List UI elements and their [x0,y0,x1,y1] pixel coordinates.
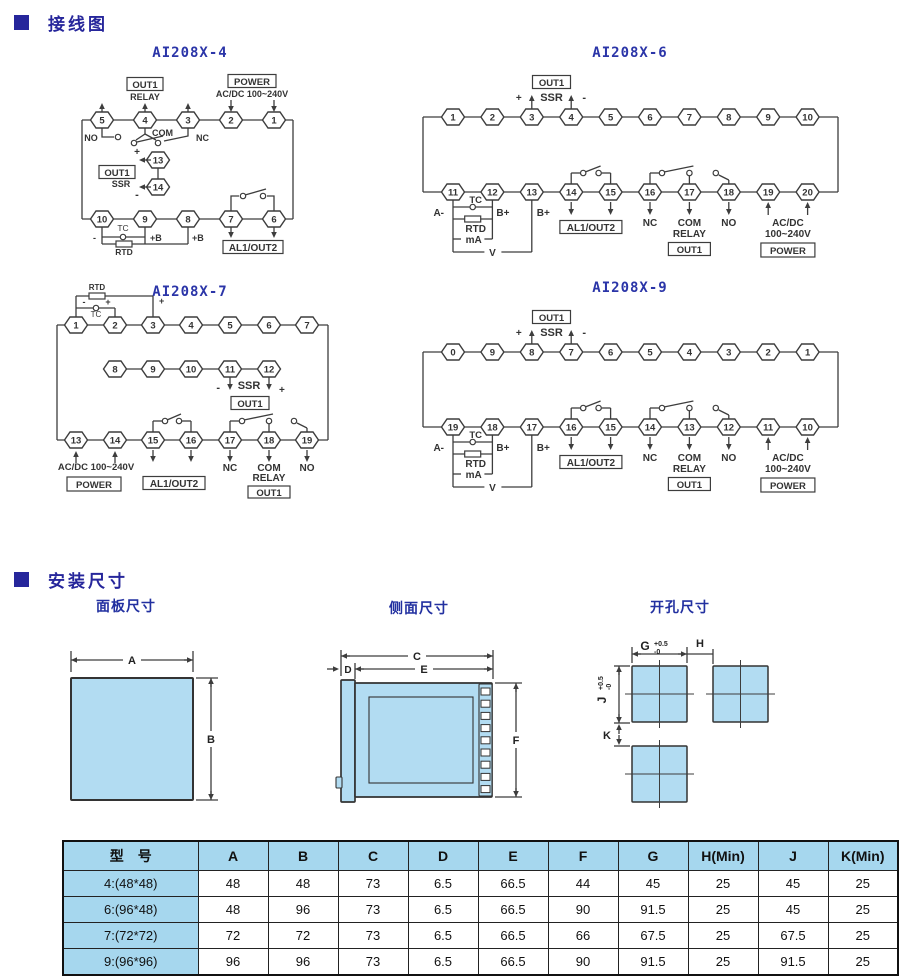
col-header: A [198,841,268,871]
arrowhead [142,103,148,109]
terminal-number: 6 [266,320,271,331]
terminal-number: 1 [450,112,456,123]
arrowhead [227,384,233,390]
terminal-number: 2 [490,112,495,123]
dimension-label: G [640,639,649,653]
terminal-number: 7 [228,214,233,225]
dimension-label: D [344,665,351,676]
arrowhead [266,456,272,462]
terminal-number: 19 [763,187,774,198]
terminal-number: 1 [73,320,79,331]
contact-dot [162,418,167,423]
row-label: 7:(72*72) [63,923,198,949]
diagram-label: B+ [496,443,509,454]
diagram-label: POWER [76,480,112,491]
cell: 66.5 [478,949,548,976]
diagram-label: 100~240V [765,464,811,475]
contact-dot [131,140,136,145]
diagram-label: TC [469,195,482,206]
arrowhead [765,437,771,443]
cell: 66.5 [478,897,548,923]
table-header-row: 型 号ABCDEFGH(Min)JK(Min) [63,841,898,871]
diagram-label: NC [643,218,657,229]
diagram-label: OUT1 [677,245,703,256]
arrowhead [805,202,811,208]
terminal-number: 5 [608,112,614,123]
cell: 44 [548,871,618,897]
col-header: B [268,841,338,871]
terminal-number: 3 [726,347,731,358]
terminal-number: 4 [569,112,575,123]
side-bezel [341,680,355,802]
terminal-number: 11 [448,187,459,198]
diagram-label: - [582,92,586,104]
terminal-number: 17 [527,422,538,433]
cell: 48 [268,871,338,897]
diagram-label: AC/DC 100~240V [216,89,288,99]
side-knob [336,777,342,788]
diagram-label: B+ [496,208,509,219]
contact-dot [239,418,244,423]
diagram-label: A- [433,208,444,219]
terminal-number: 19 [302,435,313,446]
diagram-label: + [159,296,164,306]
diagram-label: POWER [234,77,270,88]
cell: 25 [688,923,758,949]
diagram-label: + [134,147,140,158]
diagram-label: OUT1 [256,488,282,499]
terminal-number: 3 [150,320,155,331]
col-header: D [408,841,478,871]
cell: 72 [198,923,268,949]
terminal-number: 13 [684,422,695,433]
cell: 91.5 [618,897,688,923]
terminal-number: 3 [529,112,534,123]
dimension-label: F [513,735,520,747]
terminal-number: 17 [684,187,695,198]
terminal-number: 14 [153,182,164,193]
arrowhead [647,209,653,215]
diagram-label: -0 [606,684,613,690]
contact-dot [713,170,718,175]
terminal-number: 14 [110,435,121,446]
terminal-number: 2 [112,320,117,331]
contact-dot [659,405,664,410]
diagram-label: +B [192,233,204,243]
contact-dot [120,234,125,239]
terminal-number: 9 [490,347,495,358]
terminal-number: 15 [148,435,159,446]
terminal-number: 10 [802,112,813,123]
diagram-label: A- [433,443,444,454]
diagram-label: OUT1 [104,168,130,179]
diagram-label: NC [196,133,209,143]
subtitle-side-size: 侧面尺寸 [364,598,474,618]
arrowhead [568,444,574,450]
diagram-label: AL1/OUT2 [150,479,199,490]
terminal-number: 14 [645,422,656,433]
table-body: 4:(48*48)4848736.566.544452545256:(96*48… [63,871,898,976]
clip-tooth [481,773,490,780]
diagram-label: TC [117,223,128,233]
terminal-number: 11 [225,364,236,375]
diagram-label: - [93,233,96,243]
terminal-number: 9 [766,112,771,123]
wire [719,175,729,180]
terminal-number: 2 [228,115,233,126]
cell: 6.5 [408,897,478,923]
diagram-label: RELAY [253,473,286,484]
col-header: F [548,841,618,871]
side-body [355,683,492,797]
contact-dot [596,405,601,410]
dimension-label: H [696,638,704,650]
contact-dot [176,418,181,423]
arrowhead [726,444,732,450]
clip-tooth [481,786,490,793]
arrowhead [227,456,233,462]
contact-dot [260,193,265,198]
table-row: 4:(48*48)4848736.566.54445254525 [63,871,898,897]
table-row: 6:(96*48)4896736.566.59091.5254525 [63,897,898,923]
clip-tooth [481,712,490,719]
diagram-label: - [83,297,86,307]
section-title-mounting: 安装尺寸 [48,567,128,592]
diagram-label: NO [300,463,315,474]
diagram-label: AL1/OUT2 [229,243,278,254]
diagram-label: SSR [540,92,563,104]
terminal-number: 7 [569,347,574,358]
cell: 48 [198,897,268,923]
arrowhead [271,232,277,238]
terminal-number: 15 [605,187,616,198]
terminal-number: 8 [185,214,190,225]
contact-dot [581,405,586,410]
subtitle-panel-size: 面板尺寸 [71,596,181,616]
section-bullet-icon [14,572,29,587]
arrowhead [73,451,79,457]
diagram-label: + [105,297,110,307]
terminal-number: 5 [647,347,653,358]
cell: 73 [338,949,408,976]
cell: 48 [198,871,268,897]
dimension-label: K [603,730,611,742]
terminal-number: 19 [448,422,459,433]
diagram-label: AC/DC [772,218,804,229]
cell: 91.5 [758,949,828,976]
contact-dot [155,140,160,145]
diagram-title: AI208X-6 [592,45,667,61]
terminal-number: 4 [188,320,194,331]
wiring-diagram-d9: AI208X-9098765432119181716151413121110OU… [423,280,838,494]
terminal-number: 2 [766,347,771,358]
cell: 45 [618,871,688,897]
terminal-number: 13 [153,155,164,166]
arrowhead [150,456,156,462]
diagram-label: RTD [89,283,106,292]
arrowhead [616,724,622,730]
contact-dot [266,418,271,423]
arrowhead [139,157,145,163]
contact-dot [596,170,601,175]
diagram-label: RELAY [673,464,706,475]
contact-dot [659,170,664,175]
cell: 66.5 [478,923,548,949]
col-header: E [478,841,548,871]
terminal-number: 20 [802,187,813,198]
mounting-drawings: ABCEDFG+0.5-0HJ+0.5-0K [71,638,775,808]
terminal-number: 6 [271,214,276,225]
arrowhead [271,106,277,112]
terminal-number: 6 [608,347,613,358]
diagram-label: -0 [654,649,660,656]
cell: 73 [338,923,408,949]
diagram-label: 100~240V [765,229,811,240]
diagram-label: + [516,93,522,104]
wire [231,196,239,211]
cell: 6.5 [408,871,478,897]
wiring-diagram-ai208x-7: AI208X-712345678910111213141516171819TCR… [57,283,328,499]
terminal-number: 18 [724,187,735,198]
arrowhead [568,209,574,215]
arrowhead [228,232,234,238]
contact-dot [713,405,718,410]
cell: 25 [828,949,898,976]
arrowhead [616,739,622,745]
cell: 96 [198,949,268,976]
diagram-label: RTD [115,247,132,257]
terminal-number: 8 [726,112,731,123]
diagram-label: V [489,483,496,494]
diagram-label: OUT1 [677,480,703,491]
col-header: J [758,841,828,871]
cell: 73 [338,897,408,923]
cell: 90 [548,897,618,923]
terminal-number: 7 [304,320,309,331]
table-row: 9:(96*96)9696736.566.59091.52591.525 [63,949,898,976]
resistor-rtd [465,451,481,457]
terminal-number: 1 [805,347,811,358]
table-row: 7:(72*72)7272736.566.56667.52567.525 [63,923,898,949]
arrowhead [805,437,811,443]
cell: 90 [548,949,618,976]
row-label: 4:(48*48) [63,871,198,897]
arrowhead [333,666,339,672]
dimension-label: J [595,697,609,704]
diagram-label: TC [91,310,102,319]
terminal-number: 12 [724,422,735,433]
arrowhead [765,202,771,208]
clip-tooth [481,688,490,695]
wire [719,410,729,415]
diagram-label: mA [466,235,482,246]
terminal-number: 1 [271,115,277,126]
terminal-number: 0 [450,347,455,358]
contact-dot [581,170,586,175]
cell: 45 [758,871,828,897]
terminal-number: 4 [687,347,693,358]
arrowhead [726,209,732,215]
terminal-number: 13 [527,187,538,198]
terminal-number: 3 [185,115,190,126]
terminal-number: 16 [186,435,197,446]
diagram-label: OUT1 [132,80,158,91]
diagram-label: NO [721,453,736,464]
dimension-table: 型 号ABCDEFGH(Min)JK(Min) 4:(48*48)4848736… [62,840,899,976]
diagram-title: AI208X-4 [152,45,227,61]
manual-page: { "colors": { "header_blue": "#26269b", … [0,0,900,974]
contact-dot [291,418,296,423]
clip-tooth [481,737,490,744]
terminal-number: 13 [71,435,82,446]
terminal-number: 12 [264,364,275,375]
terminal-number: 6 [647,112,652,123]
cell: 6.5 [408,949,478,976]
arrowhead [687,444,693,450]
arrowhead [608,209,614,215]
col-header: K(Min) [828,841,898,871]
terminal-number: 9 [142,214,147,225]
terminal-number: 14 [566,187,577,198]
cell: 45 [758,897,828,923]
clip-tooth [481,700,490,707]
diagram-label: +B [150,233,162,243]
diagram-label: AL1/OUT2 [567,458,616,469]
diagram-label: mA [466,470,482,481]
diagram-label: RTD [465,224,486,235]
row-label: 9:(96*96) [63,949,198,976]
cell: 67.5 [618,923,688,949]
diagrams-canvas: AI208X-454321109876OUT1RELAYPOWERAC/DC 1… [0,0,900,974]
dimension-label: A [128,655,136,667]
terminal-number: 18 [487,422,498,433]
diagram-label: AC/DC [772,453,804,464]
terminal-number: 7 [687,112,692,123]
diagram-label: COM [678,453,701,464]
terminal-number: 10 [186,364,197,375]
contact-dot [687,405,692,410]
diagram-label: +0.5 [598,676,605,690]
arrowhead [687,209,693,215]
wire [102,128,114,137]
terminal-number: 8 [112,364,117,375]
terminal-number: 12 [487,187,498,198]
diagram-label: OUT1 [539,78,565,89]
cell: 72 [268,923,338,949]
arrowhead [228,106,234,112]
diagram-label: B+ [537,443,550,454]
arrowhead [568,95,574,101]
terminal-number: 17 [225,435,236,446]
diagram-label: OUT1 [539,313,565,324]
arrowhead [112,451,118,457]
dimension-label: B [207,734,215,746]
cell: 25 [828,897,898,923]
section-header-mounting: 安装尺寸 [14,567,128,592]
diagram-label: POWER [770,481,806,492]
terminal-number: 10 [97,214,108,225]
diagram-label: - [216,382,220,394]
section-header-wiring: 接线图 [14,10,108,35]
arrowhead [188,456,194,462]
terminal-number: 11 [763,422,774,433]
dimension-label: E [420,664,427,676]
diagram-label: AL1/OUT2 [567,223,616,234]
diagram-label: TC [469,430,482,441]
arrowhead [304,456,310,462]
arrowhead [139,184,145,190]
cell: 25 [688,871,758,897]
diagram-label: SSR [112,179,131,189]
diagram-label: SSR [238,380,261,392]
terminal-number: 5 [99,115,105,126]
cell: 25 [688,949,758,976]
terminal-number: 5 [227,320,233,331]
dimension-label: C [413,651,421,663]
terminal-number: 10 [802,422,813,433]
diagram-label: SSR [540,327,563,339]
diagram-label: - [135,189,139,201]
diagram-label: +0.5 [654,641,668,648]
cell: 25 [828,871,898,897]
contact-dot [687,170,692,175]
terminal-number: 4 [142,115,148,126]
diagram-label: RELAY [130,92,160,102]
col-header: C [338,841,408,871]
diagram-label: OUT1 [237,399,263,410]
arrowhead [647,444,653,450]
arrowhead [185,103,191,109]
cell: 96 [268,897,338,923]
diagram-label: NC [223,463,237,474]
wire [267,196,274,211]
col-header: 型 号 [63,841,198,871]
section-title-wiring: 接线图 [48,10,108,35]
cell: 6.5 [408,923,478,949]
wire [297,423,307,428]
cell: 73 [338,871,408,897]
arrowhead [568,330,574,336]
diagram-label: AC/DC 100~240V [58,462,135,473]
col-header: H(Min) [688,841,758,871]
section-bullet-icon [14,15,29,30]
clip-tooth [481,749,490,756]
cell: 66.5 [478,871,548,897]
row-label: 6:(96*48) [63,897,198,923]
cell: 67.5 [758,923,828,949]
terminal-number: 15 [605,422,616,433]
contact-dot [115,134,120,139]
arrowhead [608,444,614,450]
resistor-rtd [89,293,105,299]
diagram-label: COM [678,218,701,229]
cell: 96 [268,949,338,976]
arrowhead [529,95,535,101]
diagram-label: + [279,385,285,396]
cell: 25 [688,897,758,923]
diagram-label: NC [643,453,657,464]
arrowhead [529,330,535,336]
cell: 25 [828,923,898,949]
diagram-label: + [516,328,522,339]
clip-tooth [481,725,490,732]
cell: 91.5 [618,949,688,976]
arrowhead [266,384,272,390]
col-header: G [618,841,688,871]
cell: 66 [548,923,618,949]
wire [136,134,145,140]
diagram-label: NO [84,133,98,143]
